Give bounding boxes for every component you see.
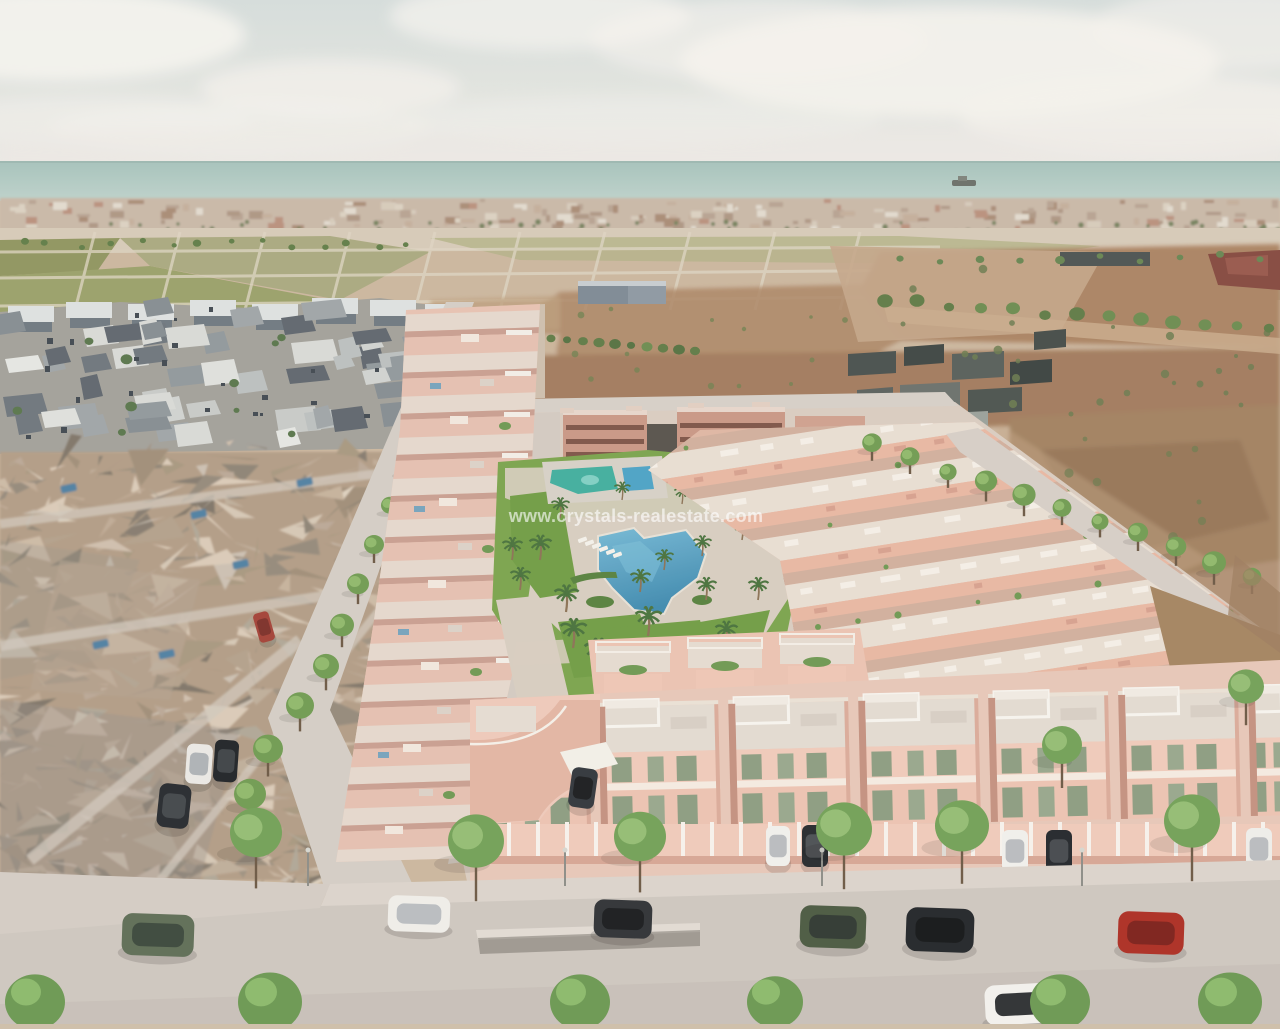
svg-text:www.crystals-realestate.com: www.crystals-realestate.com <box>508 506 764 526</box>
